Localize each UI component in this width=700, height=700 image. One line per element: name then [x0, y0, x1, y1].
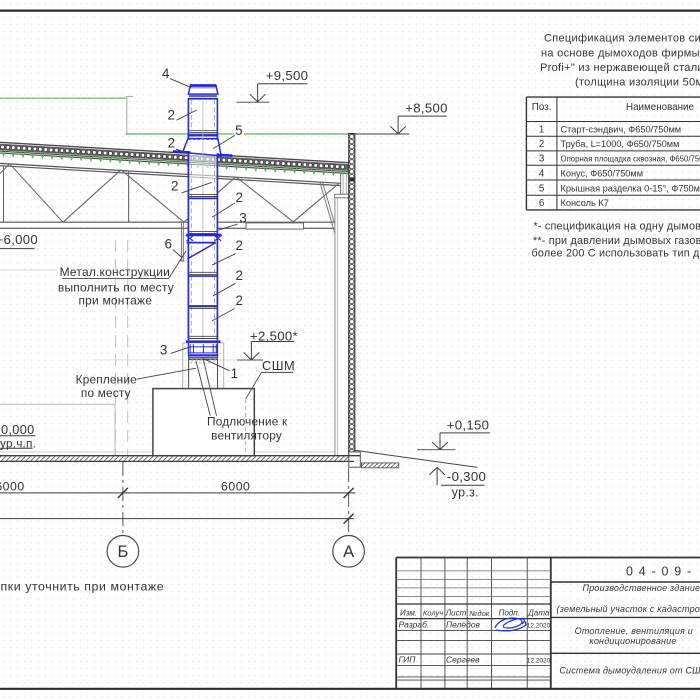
svg-text:Подп.: Подп. — [499, 609, 520, 618]
svg-text:6000: 6000 — [0, 479, 25, 493]
svg-text:Изм.: Изм. — [400, 609, 417, 618]
svg-text:ГИП: ГИП — [399, 655, 417, 665]
svg-text:более 200 С использовать тип д: более 200 С использовать тип дымохода — [532, 248, 700, 260]
svg-text:1: 1 — [231, 366, 239, 381]
svg-text:2: 2 — [539, 139, 544, 150]
svg-text:Крепление: Крепление — [76, 373, 138, 387]
svg-text:6000: 6000 — [221, 479, 250, 493]
svg-text:№док: №док — [469, 609, 489, 618]
svg-text:выполнить по месту: выполнить по месту — [58, 281, 174, 295]
svg-text:**- при давлении дымовых газов: **- при давлении дымовых газов более — [533, 235, 700, 247]
svg-text:2: 2 — [235, 238, 243, 253]
svg-text:по месту: по месту — [81, 386, 131, 400]
svg-text:Труба, L=1000, Ф650/750мм: Труба, L=1000, Ф650/750мм — [561, 139, 680, 149]
svg-text:-0,300: -0,300 — [447, 469, 486, 484]
svg-text:+0,150: +0,150 — [447, 418, 490, 433]
svg-text:Опорная площадка сквозная, Ф65: Опорная площадка сквозная, Ф650/750мм — [561, 154, 700, 163]
svg-text:6: 6 — [539, 198, 545, 209]
svg-text:3: 3 — [160, 343, 168, 358]
svg-text:ур.з.: ур.з. — [452, 486, 479, 500]
svg-text:2: 2 — [235, 190, 243, 205]
svg-text:Метал.конструкции: Метал.конструкции — [60, 265, 170, 279]
svg-text:Б: Б — [117, 543, 128, 561]
svg-text:2: 2 — [235, 268, 243, 283]
svg-text:+9,500: +9,500 — [266, 68, 309, 83]
svg-text:Дата: Дата — [527, 609, 550, 618]
svg-text:3: 3 — [239, 211, 247, 226]
svg-text:5: 5 — [539, 183, 545, 194]
svg-text:2: 2 — [168, 135, 176, 150]
svg-text:6: 6 — [165, 237, 173, 252]
svg-text:Спецификация элементов системы: Спецификация элементов системы — [544, 33, 700, 45]
svg-text:СШМ: СШМ — [262, 358, 295, 373]
svg-text:при монтаже: при монтаже — [78, 294, 152, 308]
svg-text:кондиционирование: кондиционирование — [589, 636, 676, 646]
svg-text:пки уточнить при монтаже: пки уточнить при монтаже — [1, 579, 165, 593]
svg-text:4: 4 — [162, 66, 170, 81]
svg-text:(земельный участок с кадастров: (земельный участок с кадастровым номером — [557, 604, 700, 614]
svg-text:Консоль К7: Консоль К7 — [561, 198, 609, 208]
svg-text:5: 5 — [235, 123, 243, 138]
svg-text:Подлючение к: Подлючение к — [207, 415, 288, 429]
svg-text:2: 2 — [167, 108, 175, 123]
svg-text:Лист: Лист — [445, 609, 467, 618]
svg-text:Производственное здание, распо: Производственное здание, расположенное — [583, 583, 700, 593]
svg-text:Отопление, вентиляция и: Отопление, вентиляция и — [575, 626, 693, 636]
svg-text:0,000: 0,000 — [1, 422, 35, 437]
svg-text:Поз.: Поз. — [532, 102, 552, 113]
svg-text:Пелёдов: Пелёдов — [446, 620, 481, 630]
svg-text:Profi+" из нержавеющей стали: Profi+" из нержавеющей стали — [540, 62, 700, 74]
svg-text:04-09-: 04-09- — [626, 565, 697, 579]
svg-text:4: 4 — [539, 168, 545, 179]
svg-text:12.2020: 12.2020 — [527, 622, 551, 629]
svg-text:Старт-сэндвич, Ф650/750мм: Старт-сэндвич, Ф650/750мм — [561, 125, 682, 135]
svg-text:1: 1 — [539, 125, 544, 136]
svg-text:Конус, Ф650/750мм: Конус, Ф650/750мм — [561, 168, 644, 178]
svg-text:2: 2 — [171, 178, 179, 193]
svg-text:3: 3 — [539, 153, 545, 164]
svg-text:Разраб.: Разраб. — [399, 620, 430, 630]
svg-text:на основе дымоходов фирмы "Вул: на основе дымоходов фирмы "Вулкан — [541, 47, 700, 59]
svg-text:+6,000: +6,000 — [0, 232, 38, 247]
svg-text:(толщина изоляции 50мм): (толщина изоляции 50мм) — [575, 77, 700, 89]
svg-text:Крышная разделка 0-15°, Ф750мм: Крышная разделка 0-15°, Ф750мм — [561, 183, 700, 193]
svg-text:Сергеев: Сергеев — [446, 655, 480, 665]
svg-text:Колуч: Колуч — [423, 609, 443, 618]
svg-text:+8,500: +8,500 — [405, 100, 448, 115]
svg-text:12.2020: 12.2020 — [527, 658, 551, 665]
svg-text:2: 2 — [235, 293, 243, 308]
svg-text:вентилятору: вентилятору — [211, 428, 282, 442]
svg-text:*- спецификация на одну дымову: *- спецификация на одну дымовую трубу — [534, 220, 700, 232]
svg-text:А: А — [343, 543, 354, 561]
svg-text:+2,500*: +2,500* — [250, 328, 298, 343]
svg-text:Наименование: Наименование — [626, 102, 694, 113]
svg-text:Система дымоудаления от СШМ: Система дымоудаления от СШМ — [559, 666, 700, 676]
